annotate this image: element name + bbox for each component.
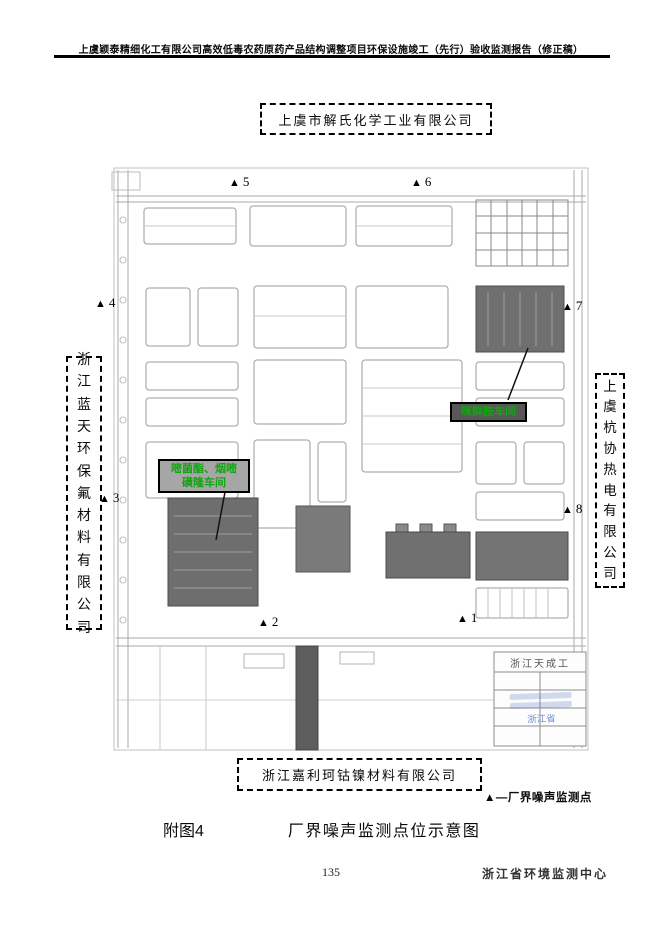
workshop-label-left: 嘧菌酯、烟嘧 磺隆车间 [158,459,250,493]
workshop-label-right: 咪鲜胺车间 [450,402,527,422]
page-header: 上虞颖泰精细化工有限公司高效低毒农药原药产品结构调整项目环保设施竣工（先行）验收… [0,41,662,56]
footer-organization: 浙江省环境监测中心 [482,865,608,882]
figure-number: 附图4 [163,823,204,840]
neighbor-label-bottom: 浙江嘉利珂钴镍材料有限公司 [262,765,457,784]
header-divider [54,55,610,58]
workshop-label-left-line2: 磺隆车间 [160,476,248,490]
stamp-text: 浙江省 [505,710,577,727]
figure-caption: 附图4厂界噪声监测点位示意图 [163,817,480,841]
workshop-label-left-line1: 嘧菌酯、烟嘧 [160,462,248,476]
title-block-text: 浙江天成工 [498,655,582,670]
stamp-decoration [510,692,572,700]
neighbor-box-right: 上虞杭协热电有限公司 [595,373,625,588]
neighbor-box-left: 浙江蓝天环保氟材料有限公司 [66,356,102,630]
neighbor-box-top: 上虞市解氏化学工业有限公司 [260,103,492,135]
workshop-label-right-text: 咪鲜胺车间 [461,406,516,418]
legend: ▲—厂界噪声监测点 [484,789,592,805]
neighbor-box-bottom: 浙江嘉利珂钴镍材料有限公司 [237,758,482,791]
neighbor-label-top: 上虞市解氏化学工业有限公司 [278,110,473,129]
report-page: 上虞颖泰精细化工有限公司高效低毒农药原药产品结构调整项目环保设施竣工（先行）验收… [0,0,662,936]
stamp-decoration [510,701,572,709]
neighbor-label-left: 浙江蓝天环保氟材料有限公司 [77,348,91,638]
figure-title: 厂界噪声监测点位示意图 [288,823,481,840]
neighbor-label-right: 上虞杭协热电有限公司 [603,377,617,585]
design-stamp: 浙江省 [504,689,577,726]
